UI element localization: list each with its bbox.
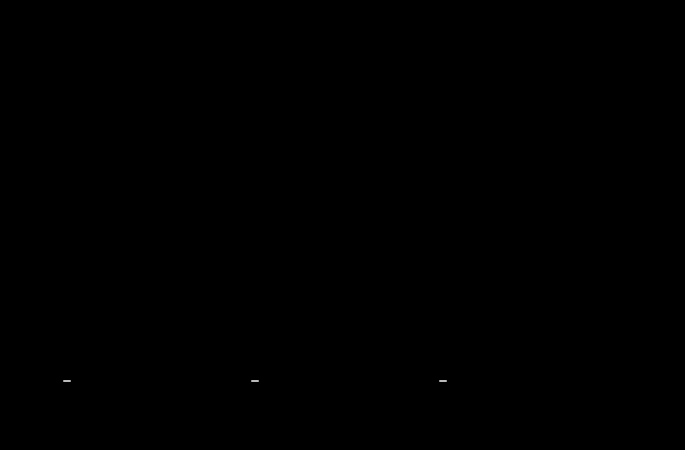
plan-label-2d [62,377,72,386]
typology-code [63,380,71,382]
building-key-plan [65,403,273,439]
typology-code [251,380,259,382]
left-dimension-lines [18,56,64,376]
typology-code [439,380,447,382]
plan-label-2da [438,377,658,386]
plan-label-1d [250,377,260,386]
